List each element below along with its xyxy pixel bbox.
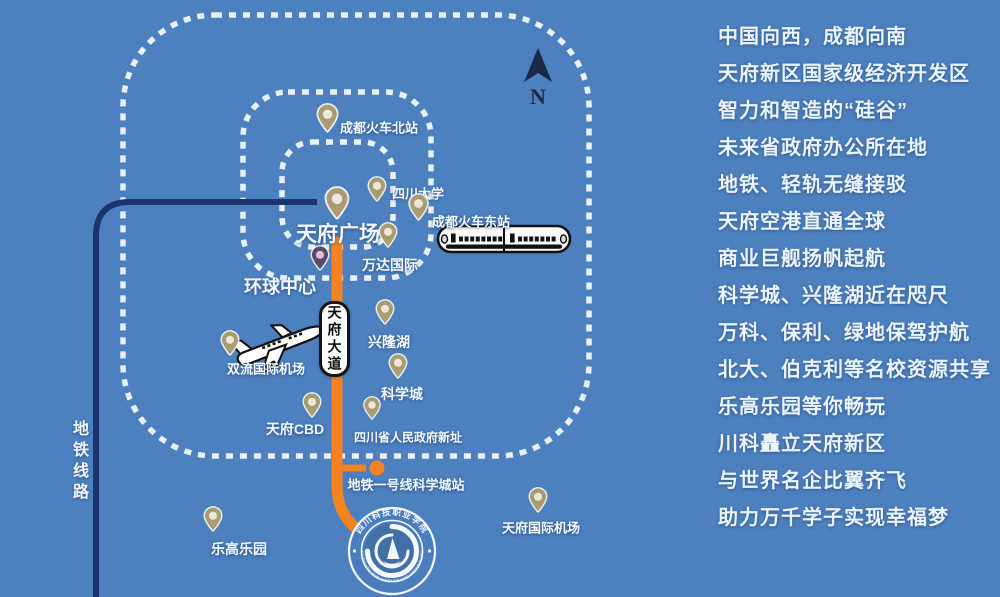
school-badge-logo: 四川科技职业学院 UNIVERSITY FOR SCIENCE AND TECH… [347, 506, 437, 596]
map-pin-chengdu-north-railway-station-icon [316, 103, 339, 133]
metro-station-label: 地铁一号线科学城站 [347, 475, 464, 494]
promo-map-page: N [0, 0, 1000, 597]
map-pin-shuangliu-international-airport-icon [220, 330, 240, 356]
map-pin-wanda-international-icon [378, 222, 398, 248]
map-pin-chengdu-east-railway-station-icon [408, 193, 429, 221]
headline-line: 地铁、轻轨无缝接驳 [718, 167, 991, 204]
headline-line: 与世界名企比翼齐飞 [718, 463, 991, 500]
map-label-xinglong-lake: 兴隆湖 [368, 332, 410, 352]
headline-line: 天府空港直通全球 [718, 204, 991, 241]
headline-line: 天府新区国家级经济开发区 [718, 56, 991, 93]
headline-line: 科学城、兴隆湖近在咫尺 [718, 278, 991, 315]
map-label-tianfu-international-airport: 天府国际机场 [502, 518, 580, 537]
map-pin-tianfu-international-airport-icon [528, 487, 548, 513]
map-pin-global-center-icon [310, 245, 330, 271]
map-label-wanda-international: 万达国际 [362, 255, 418, 275]
headline-line: 北大、伯克利等名校资源共享 [718, 352, 991, 389]
map-pin-tianfu-cbd-icon [302, 392, 322, 418]
headline-line: 智力和智造的“硅谷” [718, 93, 991, 130]
map-label-legoland: 乐高乐园 [211, 539, 267, 559]
map-label-tianfu-square: 天府广场 [296, 218, 380, 248]
map-label-sichuan-provincial-government-new-site: 四川省人民政府新址 [354, 429, 462, 446]
map-pin-sichuan-provincial-government-new-site-icon [363, 396, 381, 420]
map-label-science-city: 科学城 [381, 384, 423, 404]
map-pin-tianfu-square-icon [324, 186, 350, 220]
metro-line-label: 地铁线路 [66, 420, 90, 504]
compass: N [515, 44, 561, 108]
map-label-global-center: 环球中心 [244, 273, 316, 299]
metro-station-dot [370, 461, 385, 476]
map-pin-science-city-icon [388, 353, 408, 379]
map-label-tianfu-cbd: 天府CBD [266, 419, 324, 439]
map-label-chengdu-east-railway-station: 成都火车东站 [432, 212, 510, 231]
compass-arrow-icon [524, 48, 552, 82]
map-pin-sichuan-university-icon [367, 176, 387, 202]
headline-line: 万科、保利、绿地保驾护航 [718, 315, 991, 352]
metro-line-path [96, 202, 317, 597]
map-label-chengdu-north-railway-station: 成都火车北站 [340, 118, 418, 137]
headline-list: 中国向西，成都向南天府新区国家级经济开发区智力和智造的“硅谷”未来省政府办公所在… [718, 19, 991, 537]
headline-line: 助力万千学子实现幸福梦 [718, 500, 991, 537]
headline-line: 川科矗立天府新区 [718, 426, 991, 463]
headline-line: 商业巨舰扬帆起航 [718, 241, 991, 278]
headline-line: 乐高乐园等你畅玩 [718, 389, 991, 426]
headline-line: 中国向西，成都向南 [718, 19, 991, 56]
map-pin-legoland-icon [203, 506, 223, 532]
tianfu-avenue-sign: 天府大道 [319, 301, 350, 377]
map-label-shuangliu-international-airport: 双流国际机场 [227, 359, 305, 378]
headline-line: 未来省政府办公所在地 [718, 130, 991, 167]
compass-n-label: N [530, 84, 546, 108]
map-pin-xinglong-lake-icon [375, 299, 395, 325]
